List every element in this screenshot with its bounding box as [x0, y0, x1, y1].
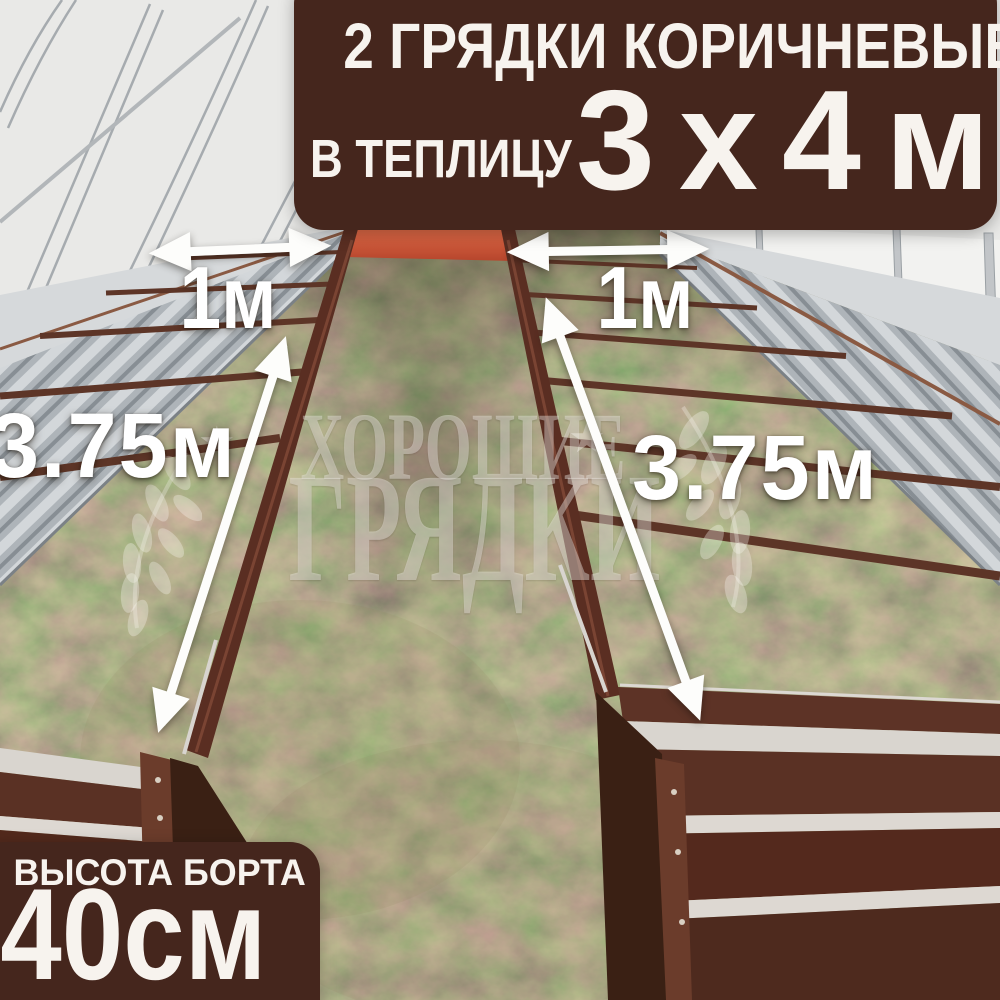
product-photo: ХОРОШИЕ ГРЯДКИ ★ ★	[0, 0, 1000, 1000]
title-banner-line2-prefix: В ТЕПЛИЦУ	[310, 132, 572, 186]
right-bed-length-label: 3.75м	[632, 422, 879, 514]
left-bed-length-label: 3.75м	[0, 400, 237, 492]
title-banner: 2 ГРЯДКИ КОРИЧНЕВЫЕ В ТЕПЛИЦУ 3х4м	[294, 0, 997, 230]
right-bed-width-label: 1м	[586, 254, 705, 342]
board-height-banner: ВЫСОТА БОРТА 40см	[0, 842, 320, 1000]
left-bed-width-label: 1м	[169, 254, 288, 342]
board-height-value: 40см	[0, 869, 294, 999]
greenhouse-size-value: 3х4м	[576, 70, 1000, 212]
